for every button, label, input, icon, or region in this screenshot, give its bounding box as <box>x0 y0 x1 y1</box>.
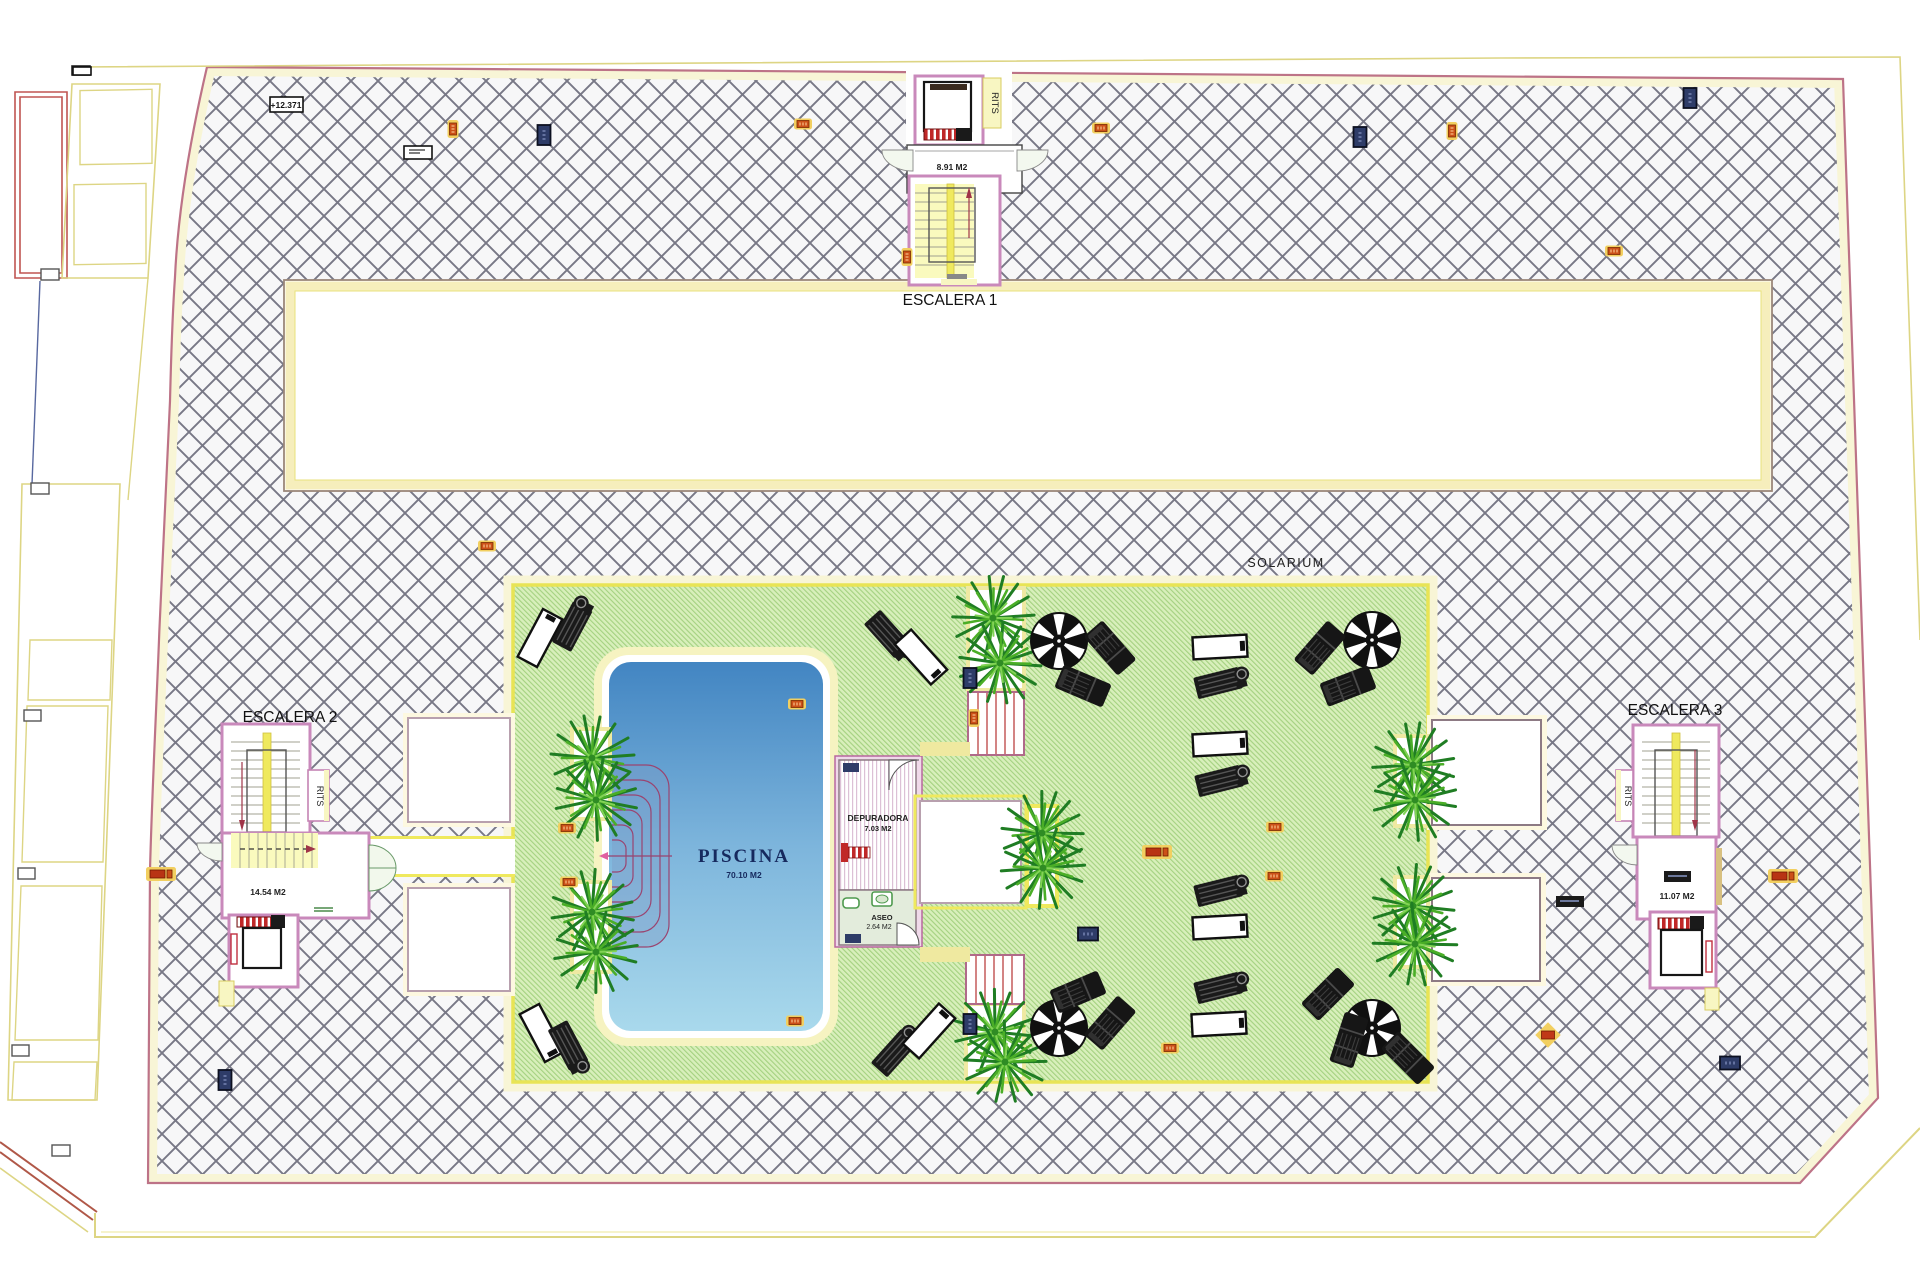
svg-text:ESCALERA 1: ESCALERA 1 <box>903 292 998 309</box>
svg-text:14.54 M2: 14.54 M2 <box>250 887 286 897</box>
svg-text:PISCINA: PISCINA <box>698 846 790 867</box>
svg-text:ASEO: ASEO <box>871 913 892 922</box>
svg-text:70.10 M2: 70.10 M2 <box>726 870 762 880</box>
svg-text:SOLARIUM: SOLARIUM <box>1247 556 1324 570</box>
svg-text:11.07 M2: 11.07 M2 <box>1660 891 1695 901</box>
svg-text:ESCALERA 3: ESCALERA 3 <box>1628 702 1723 719</box>
svg-text:RITS: RITS <box>315 786 325 807</box>
svg-text:8.91 M2: 8.91 M2 <box>937 162 968 172</box>
svg-text:ESCALERA 2: ESCALERA 2 <box>243 709 338 726</box>
svg-text:2.64 M2: 2.64 M2 <box>866 924 891 931</box>
svg-text:RITS: RITS <box>989 92 1000 114</box>
svg-text:+12.371: +12.371 <box>271 100 302 110</box>
svg-text:DEPURADORA: DEPURADORA <box>848 813 909 823</box>
svg-text:RITS: RITS <box>1623 786 1633 807</box>
svg-text:7.03 M2: 7.03 M2 <box>864 824 891 833</box>
